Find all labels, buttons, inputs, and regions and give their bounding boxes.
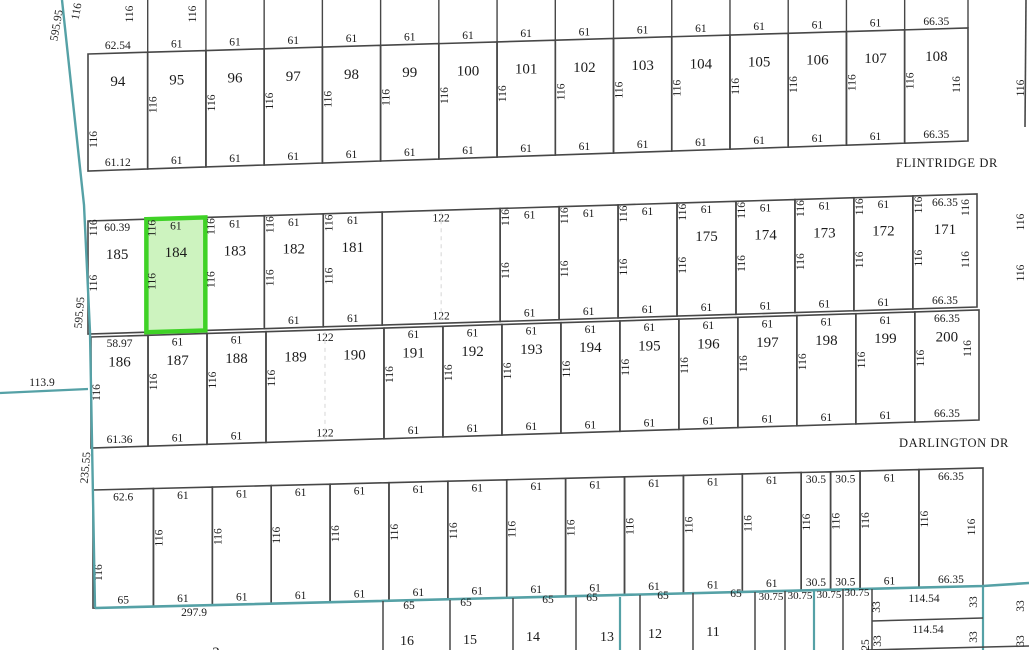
dimension-label: 114.54	[912, 624, 943, 636]
lot-number-105: 105	[748, 55, 771, 71]
lot-number-183: 183	[224, 243, 247, 259]
dimension-label: 30.5	[806, 577, 826, 589]
dimension-label: 116	[271, 526, 283, 543]
dimension-label: 61	[819, 299, 831, 311]
lot-number-13: 13	[600, 630, 614, 645]
dimension-label: 61	[472, 586, 484, 598]
dimension-label: 61	[177, 490, 189, 502]
lot-number-106: 106	[806, 53, 829, 69]
lot-number-104: 104	[690, 56, 713, 72]
dimension-label: 116	[795, 200, 807, 217]
dimension-label: 116	[618, 205, 630, 222]
dimension-label: 66.35	[932, 197, 958, 209]
dimension-label: 61	[766, 475, 778, 487]
dimension-label: 61	[821, 412, 833, 424]
dimension-label: 61	[701, 302, 713, 314]
lot-number-174: 174	[754, 227, 777, 243]
dimension-label: 61	[884, 472, 896, 484]
dimension-label: 61	[346, 149, 358, 161]
dimension-label: 61	[295, 590, 307, 602]
dimension-label: 61	[812, 19, 824, 31]
dimension-label: 116	[620, 359, 632, 376]
lot-number-184: 184	[165, 245, 188, 261]
dimension-label: 116	[677, 257, 689, 274]
dimension-label: 116	[1015, 264, 1027, 281]
dimension-label: 116	[146, 273, 158, 290]
dimension-label: 116	[206, 94, 218, 111]
adjacent-parcel-line-northeast	[1025, 0, 1026, 127]
dimension-label: 25	[860, 639, 872, 650]
dimension-label: 116	[500, 209, 512, 226]
dimension-label: 66.35	[934, 408, 960, 420]
dimension-label: 116	[266, 370, 278, 387]
dimension-label: 116	[738, 355, 750, 372]
lot-number-181: 181	[341, 240, 364, 256]
dimension-label: 62.54	[105, 40, 131, 52]
dimension-label: 116	[212, 528, 224, 545]
dimension-label: 33	[872, 635, 884, 647]
dimension-label: 61	[231, 430, 243, 442]
dimension-label: 30.75	[759, 591, 784, 603]
dimension-label: 116	[860, 512, 872, 529]
dimension-label: 61	[766, 578, 778, 590]
dimension-label: 61	[644, 322, 656, 334]
dimension-label: 61	[170, 220, 182, 232]
lot-number-196: 196	[697, 337, 720, 353]
dimension-label: 116	[330, 525, 342, 542]
lot-number-100: 100	[457, 63, 480, 79]
dimension-label: 116	[566, 519, 578, 536]
lot-number-200: 200	[936, 329, 959, 345]
lot-number-172: 172	[872, 224, 895, 240]
dimension-label: 116	[966, 518, 978, 535]
dimension-label: 116	[683, 516, 695, 533]
dimension-label: 61	[703, 416, 715, 428]
dimension-label: 61	[229, 37, 241, 49]
dimension-label: 65	[730, 588, 742, 600]
lot-number-191: 191	[402, 346, 425, 362]
dimension-label: 61	[472, 483, 484, 495]
dimension-label: 61	[583, 208, 595, 220]
dimension-label: 30.75	[845, 587, 870, 599]
lot-number-190: 190	[343, 347, 366, 363]
dimension-label: 116	[1015, 79, 1027, 96]
dimension-label: 116	[507, 521, 519, 538]
dimension-label: 116	[915, 350, 927, 367]
lot-number-97: 97	[286, 69, 302, 85]
dimension-label: 116	[448, 522, 460, 539]
dimension-label: 33	[968, 631, 980, 643]
dimension-label: 62.6	[113, 491, 133, 503]
dimension-label: 116	[962, 340, 974, 357]
dimension-label: 61	[585, 324, 597, 336]
dimension-label: 116	[788, 76, 800, 93]
dimension-label: 33	[1015, 600, 1027, 612]
dimension-label: 61	[524, 308, 536, 320]
dimension-label: 116	[913, 196, 925, 213]
dimension-label: 116	[384, 366, 396, 383]
dimension-label: 116	[500, 262, 512, 279]
dimension-label: 116	[88, 219, 100, 236]
dimension-label: 116	[91, 384, 103, 401]
lot-number-16: 16	[400, 634, 414, 649]
dimension-label: 61	[589, 480, 601, 492]
dimension-label: 61	[530, 584, 542, 596]
dimension-label: 65	[460, 597, 472, 609]
dimension-label: 61	[878, 297, 890, 309]
lot-number-171: 171	[934, 222, 957, 238]
boundary-dim-297-9: 297.9	[181, 607, 207, 619]
dimension-label: 61	[236, 488, 248, 500]
dimension-label: 61	[404, 31, 416, 43]
dimension-label: 116	[205, 271, 217, 288]
dimension-label: 116	[264, 92, 276, 109]
dimension-label: 61	[762, 414, 774, 426]
lot-number-15: 15	[463, 633, 477, 648]
dimension-label: 116	[381, 89, 393, 106]
dimension-label: 116	[905, 72, 917, 89]
dimension-label: 30.5	[835, 473, 855, 485]
dimension-label: 116	[618, 258, 630, 275]
dimension-label: 61	[701, 204, 713, 216]
dimension-label: 61	[644, 417, 656, 429]
lot-number-107: 107	[864, 51, 887, 67]
dimension-label: 116	[677, 203, 689, 220]
dimension-label: 65	[542, 594, 554, 606]
dimension-label: 61	[695, 137, 707, 149]
lot-number-199: 199	[874, 331, 897, 347]
dimension-label: 116	[856, 351, 868, 368]
dimension-label: 116	[742, 515, 754, 532]
lot-number-193: 193	[520, 342, 543, 358]
dimension-label: 66.35	[923, 129, 949, 141]
plat-map: 62.5461.12941166161951166161961166161971…	[0, 0, 1029, 650]
dimension-label: 116	[323, 214, 335, 231]
dimension-label: 30.75	[817, 589, 842, 601]
dimension-label: 116	[846, 74, 858, 91]
dimension-label: 61	[229, 219, 241, 231]
dimension-label: 65	[657, 590, 669, 602]
dimension-label: 116	[187, 5, 199, 22]
dimension-label: 30.5	[806, 474, 826, 486]
lot-number-12: 12	[648, 627, 662, 642]
dimension-label: 66.35	[923, 16, 949, 28]
dimension-label: 116	[625, 518, 637, 535]
dimension-label: 116	[913, 249, 925, 266]
dimension-label: 61	[354, 588, 366, 600]
lot-number-2: 2	[212, 645, 220, 650]
lot-number-108: 108	[925, 49, 948, 65]
dimension-label: 61	[880, 315, 892, 327]
dimension-label: 116	[559, 260, 571, 277]
lot-number-195: 195	[638, 338, 661, 354]
dimension-label: 61	[347, 215, 359, 227]
lot-number-185: 185	[106, 247, 129, 263]
dimension-label: 61	[760, 300, 772, 312]
dimension-label: 116	[919, 510, 931, 527]
dimension-label: 61	[753, 21, 765, 33]
dimension-label: 61	[583, 306, 595, 318]
dimension-label: 116	[679, 357, 691, 374]
lot-number-189: 189	[284, 349, 307, 365]
dimension-label: 61	[812, 133, 824, 145]
dimension-label: 116	[795, 253, 807, 270]
dimension-label: 61	[642, 304, 654, 316]
dimension-label: 116	[960, 199, 972, 216]
dimension-label: 116	[951, 76, 963, 93]
dimension-label: 114.54	[908, 593, 939, 605]
lot-number-188: 188	[225, 351, 248, 367]
lot-number-186: 186	[108, 355, 131, 371]
dimension-label: 61	[753, 135, 765, 147]
dimension-label: 61	[236, 591, 248, 603]
dimension-label: 116	[389, 524, 401, 541]
lot-number-194: 194	[579, 340, 602, 356]
dimension-label: 116	[264, 269, 276, 286]
dimension-label: 61	[637, 139, 649, 151]
dimension-label: 116	[207, 371, 219, 388]
dimension-label: 116	[854, 198, 866, 215]
dimension-label: 116	[88, 131, 100, 148]
dimension-label: 116	[502, 362, 514, 379]
dimension-label: 116	[264, 216, 276, 233]
dimension-label: 61	[878, 199, 890, 211]
lot-number-99: 99	[402, 65, 417, 81]
dimension-label: 61	[413, 484, 425, 496]
dimension-label: 116	[736, 255, 748, 272]
dimension-label: 61	[288, 35, 300, 47]
dimension-label: 61	[648, 478, 660, 490]
dimension-label: 116	[561, 360, 573, 377]
dimension-label: 116	[736, 202, 748, 219]
dimension-label: 65	[586, 592, 598, 604]
dimension-label: 61	[585, 419, 597, 431]
lot-number-192: 192	[461, 344, 484, 360]
dimension-label: 61	[642, 206, 654, 218]
dimension-label: 116	[205, 218, 217, 235]
dimension-label: 61	[346, 33, 358, 45]
dimension-label: 116	[730, 78, 742, 95]
lot-number-94: 94	[110, 74, 126, 90]
dimension-label: 61.36	[107, 434, 133, 446]
lot-number-173: 173	[813, 226, 836, 242]
dimension-label: 116	[439, 87, 451, 104]
dimension-label: 61	[530, 481, 542, 493]
dimension-label: 116	[831, 513, 843, 530]
lot-number-11: 11	[706, 625, 719, 640]
dimension-label: 116	[801, 513, 813, 530]
dimension-label: 61	[413, 587, 425, 599]
lot-number-98: 98	[344, 67, 359, 83]
dimension-label: 61	[819, 201, 831, 213]
dimension-label: 61	[288, 151, 300, 163]
street-label-darlington-dr: DARLINGTON DR	[899, 436, 1009, 450]
dimension-label: 61	[821, 317, 833, 329]
lot-number-187: 187	[166, 353, 189, 369]
dimension-label: 61	[637, 25, 649, 37]
dimension-label: 33	[1015, 635, 1027, 647]
dimension-label: 116	[1015, 213, 1027, 230]
dimension-label: 116	[559, 207, 571, 224]
lot-number-96: 96	[228, 71, 244, 87]
dimension-label: 116	[146, 220, 158, 237]
dimension-label: 61	[579, 26, 591, 38]
dimension-label: 60.39	[104, 222, 130, 234]
dimension-label: 61	[526, 326, 538, 338]
dimension-label: 61	[524, 210, 536, 222]
dimension-label: 116	[555, 83, 567, 100]
dimension-label: 116	[153, 529, 165, 546]
dimension-label: 116	[614, 81, 626, 98]
dimension-label: 61	[172, 432, 184, 444]
dimension-label: 66.35	[938, 574, 964, 586]
boundary-dim-113-9: 113.9	[29, 377, 55, 389]
plat-map-svg[interactable]: 62.5461.12941166161951166161961166161971…	[0, 0, 1029, 650]
dimension-label: 61	[171, 155, 183, 167]
dimension-label: 61	[462, 30, 474, 42]
lot-number-103: 103	[631, 58, 654, 74]
dimension-label: 61	[295, 487, 307, 499]
dimension-label: 61	[526, 421, 538, 433]
dimension-label: 61	[884, 575, 896, 587]
dimension-label: 116	[797, 353, 809, 370]
lot-number-198: 198	[815, 333, 838, 349]
dimension-label: 116	[322, 91, 334, 108]
dimension-label: 116	[443, 364, 455, 381]
dimension-label: 116	[960, 251, 972, 268]
lot-number-101: 101	[515, 62, 538, 78]
dimension-label: 61	[703, 320, 715, 332]
dimension-label: 61	[177, 593, 189, 605]
dimension-label: 116	[497, 85, 509, 102]
dimension-label: 61	[707, 477, 719, 489]
dimension-label: 61	[760, 202, 772, 214]
dimension-label: 61	[408, 329, 420, 341]
dimension-label: 61	[467, 327, 479, 339]
dimension-label: 61	[707, 580, 719, 592]
dimension-label: 61	[462, 145, 474, 157]
dimension-label: 116	[672, 80, 684, 97]
dimension-label: 61.12	[105, 157, 131, 169]
lot-number-197: 197	[756, 335, 779, 351]
dimension-label: 116	[323, 267, 335, 284]
dimension-label: 61	[870, 131, 882, 143]
street-label-flintridge-dr: FLINTRIDGE DR	[896, 156, 998, 170]
dimension-label: 116	[88, 274, 100, 291]
dimension-label: 61	[520, 28, 532, 40]
dimension-label: 61	[229, 153, 241, 165]
dimension-label: 116	[124, 5, 136, 22]
dimension-label: 66.35	[934, 313, 960, 325]
lot-number-102: 102	[573, 60, 596, 76]
dimension-label: 61	[408, 425, 420, 437]
dimension-label: 61	[467, 423, 479, 435]
dimension-label: 61	[171, 38, 183, 50]
dimension-label: 61	[354, 485, 366, 497]
lot-number-175: 175	[695, 229, 718, 245]
dimension-label: 33	[871, 601, 883, 613]
lot-number-95: 95	[169, 72, 184, 88]
dimension-label: 61	[172, 336, 184, 348]
dimension-label: 61	[288, 315, 300, 327]
dimension-label: 65	[403, 600, 415, 612]
lot-number-182: 182	[283, 242, 306, 258]
dimension-label: 116	[854, 251, 866, 268]
dimension-label: 66.35	[938, 471, 964, 483]
dimension-label: 65	[117, 594, 129, 606]
dimension-label: 61	[520, 143, 532, 155]
dimension-label: 33	[968, 596, 980, 608]
dimension-label: 116	[148, 96, 160, 113]
dimension-label: 30.75	[788, 590, 813, 602]
dimension-label: 116	[148, 373, 160, 390]
dimension-label: 61	[762, 318, 774, 330]
dimension-label: 61	[695, 23, 707, 35]
dimension-label: 61	[579, 141, 591, 153]
dimension-label: 61	[347, 313, 359, 325]
dimension-label: 61	[231, 335, 243, 347]
dimension-label: 61	[288, 217, 300, 229]
lot-number-14: 14	[526, 630, 540, 645]
dimension-label: 61	[880, 410, 892, 422]
dimension-label: 61	[404, 147, 416, 159]
dimension-label: 66.35	[932, 295, 958, 307]
dimension-label: 58.97	[107, 338, 133, 350]
dimension-label: 61	[870, 18, 882, 30]
